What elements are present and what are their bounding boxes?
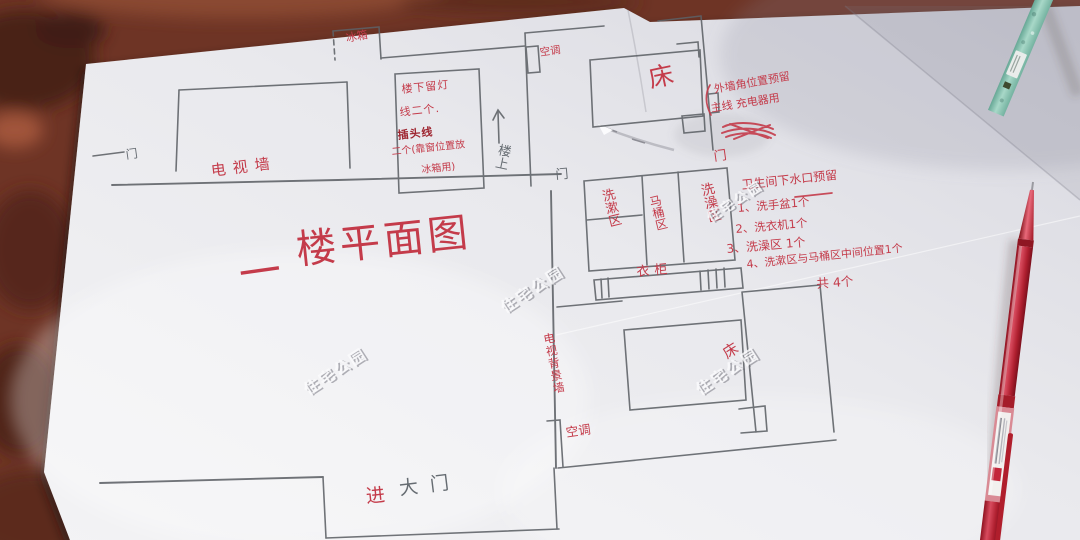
paper-sheet [10, 0, 1080, 540]
photo-of-floorplan: 冰箱 空调 床 门 电视墙 楼下留灯 线二个. 插头线 二个(靠窗位置放 冰箱用… [0, 0, 1080, 540]
floorplan-drawing [0, 0, 1080, 540]
